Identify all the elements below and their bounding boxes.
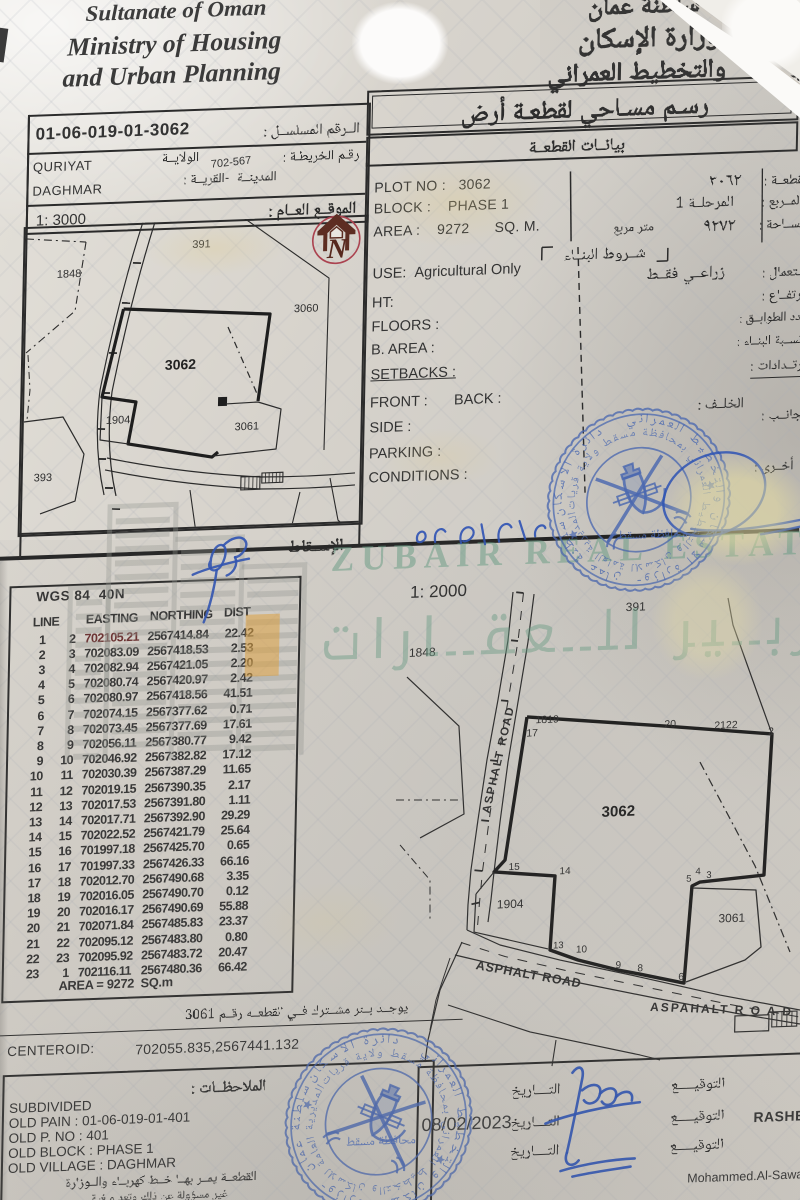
svg-text:N: N [326,233,350,265]
